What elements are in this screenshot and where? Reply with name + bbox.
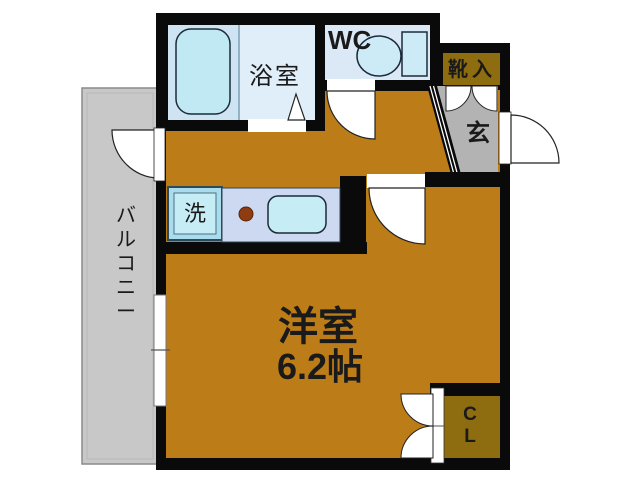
toilet-tank-icon [402,32,427,76]
balcony-door-leaf [154,128,165,181]
wall-right-of-kitchen [340,176,366,253]
kitchen: 洗 [168,187,340,242]
front-door-arc [511,115,559,163]
entrance-label: 玄 [466,119,490,147]
floor-plan-page: 浴室 WC 靴入 玄 [0,0,640,480]
kitchen-bottom-wall [156,242,367,254]
closet-label: CL [463,404,477,447]
wc-label: WC [328,25,372,55]
shoe-cabinet-label: 靴入 [448,57,496,81]
wc-door-opening [327,79,375,92]
main-room-size-label: 6.2帖 [277,346,363,387]
main-room-label: 洋室 [278,305,358,349]
bathroom-label: 浴室 [249,63,301,90]
balcony-label: バルコニー [116,205,136,323]
shoe-cabinet: 靴入 [433,43,510,90]
burner-icon [239,207,253,221]
bathroom: 浴室 [156,13,325,132]
front-door-leaf [499,112,511,164]
room-door-opening [367,174,425,188]
entrance-bottom-wall [425,172,510,187]
bathtub [176,29,230,114]
laundry-label: 洗 [184,201,206,226]
sink-icon [268,196,326,233]
bathroom-door-opening [248,119,306,132]
floor-plan: 浴室 WC 靴入 玄 [0,0,640,480]
